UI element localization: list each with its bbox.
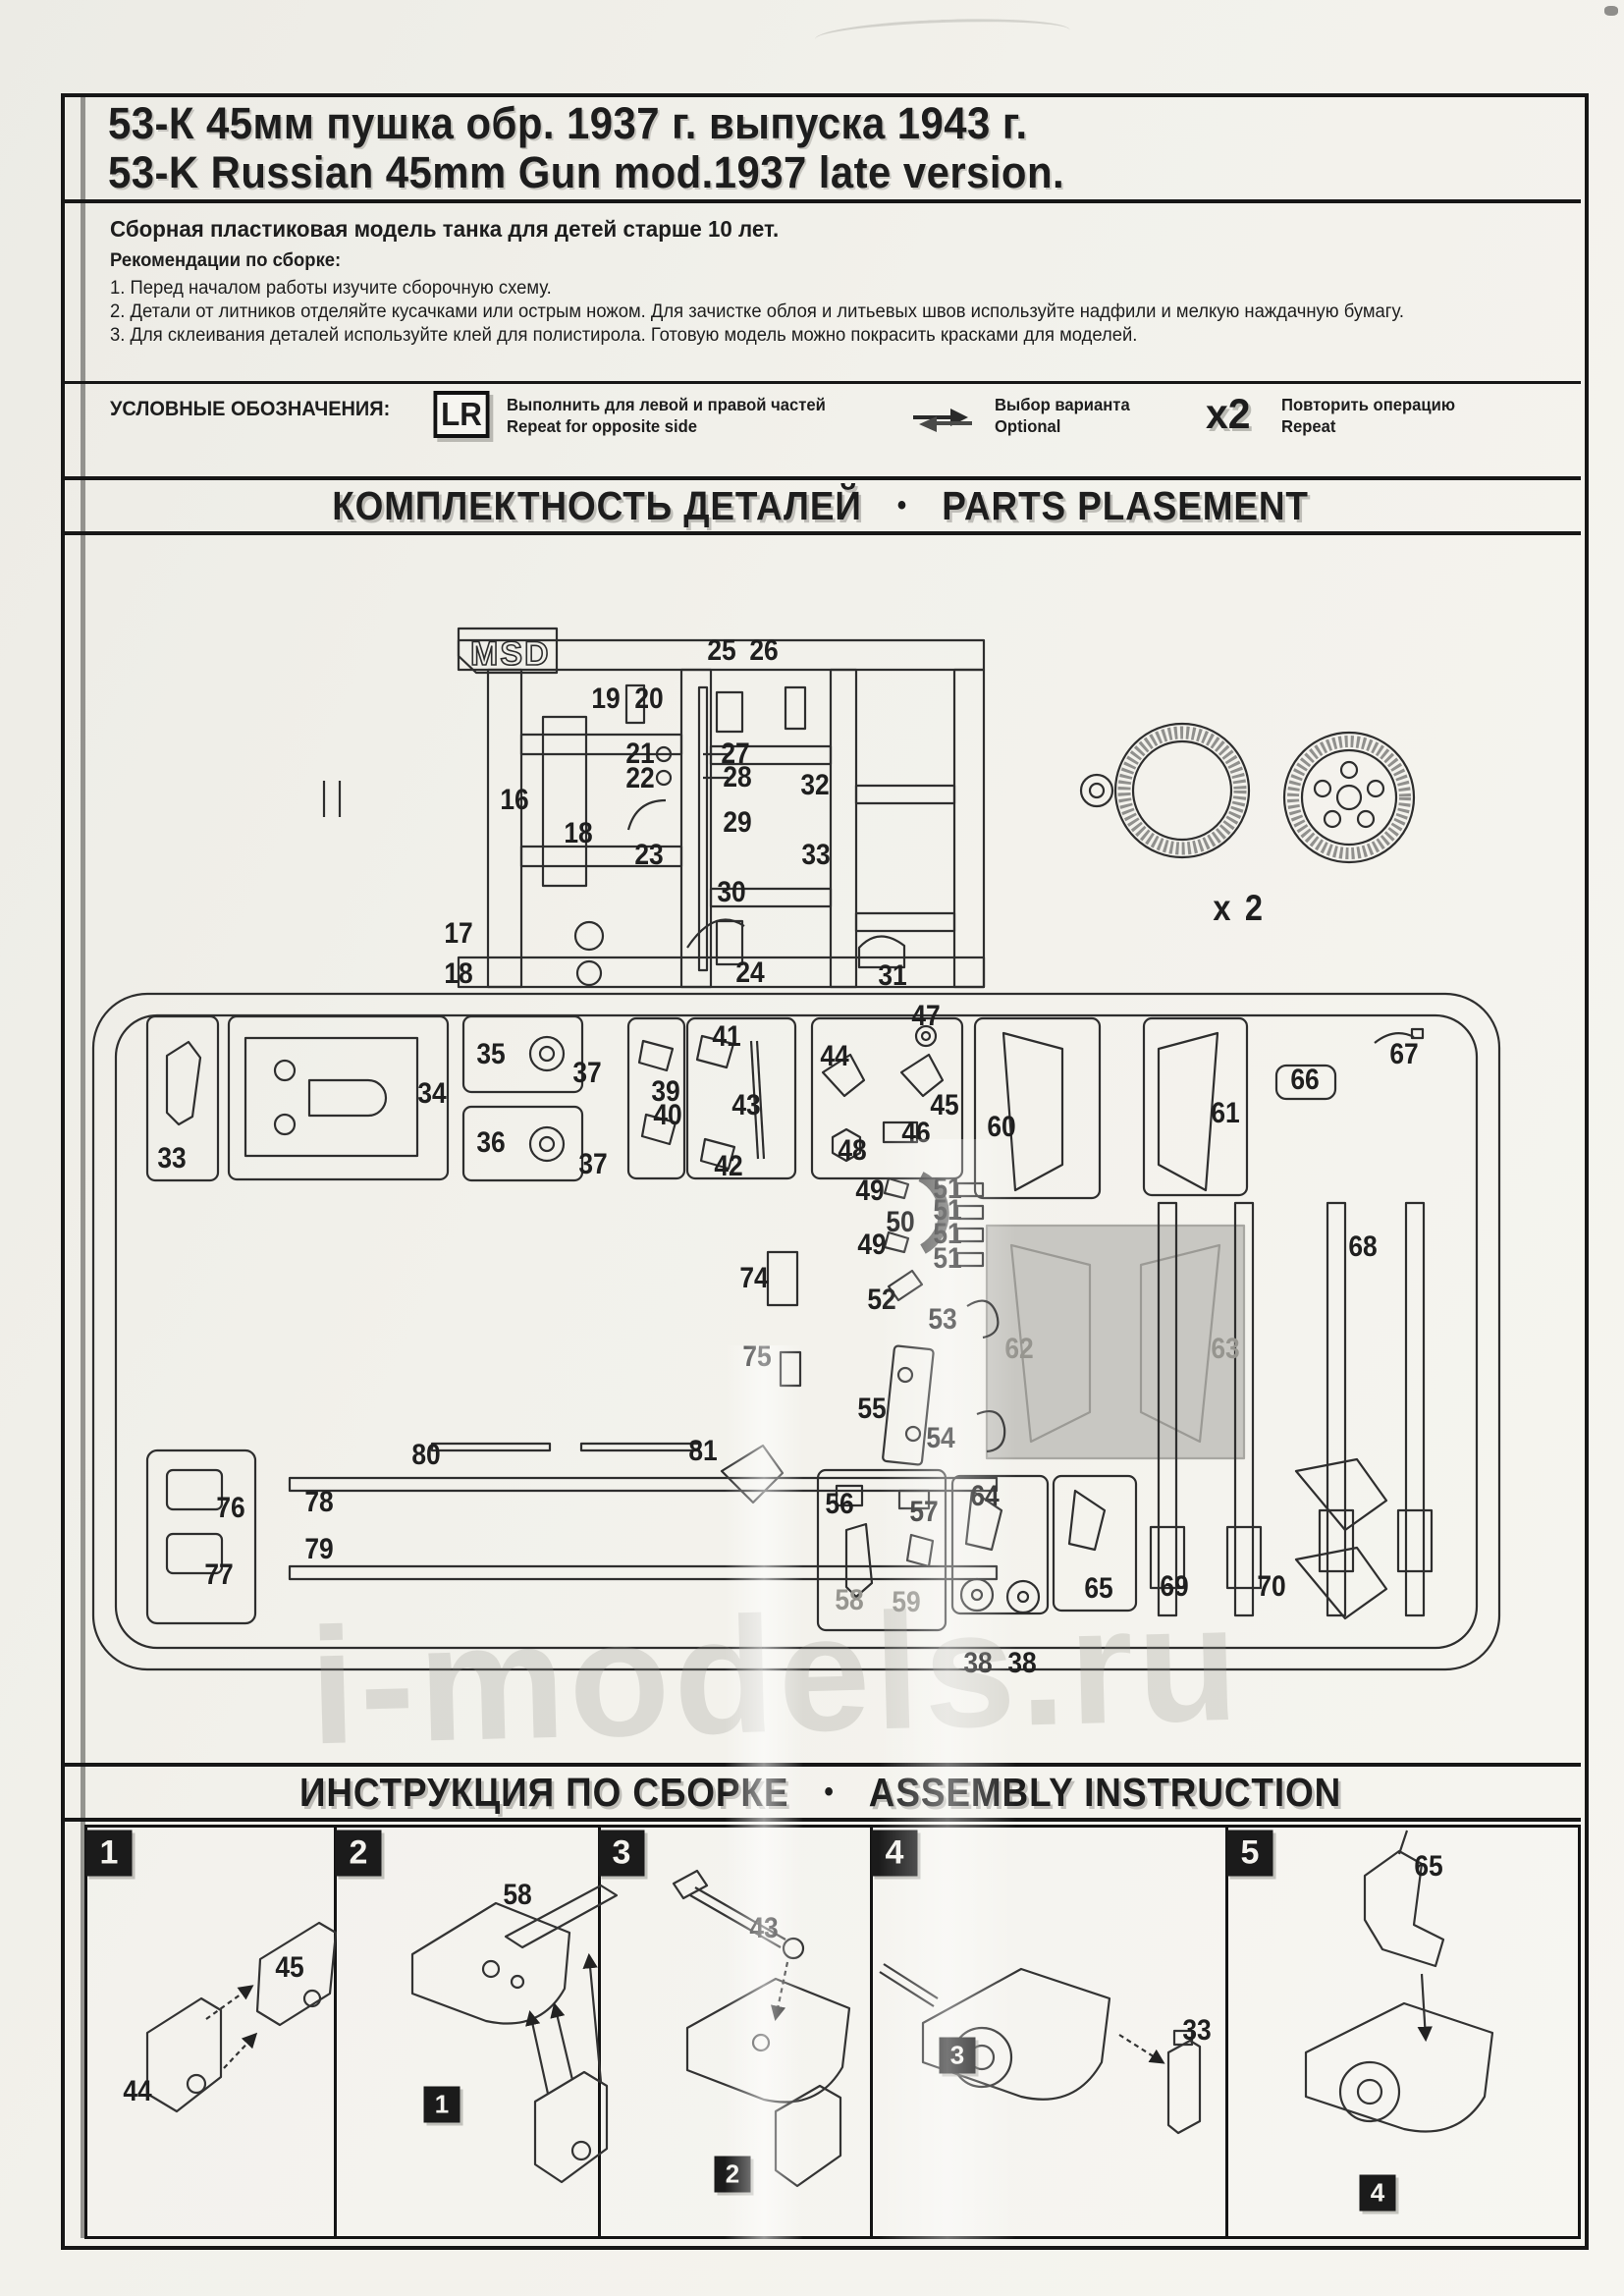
shop-watermark: i-models.ru [379,1517,1172,1832]
scan-artifact-curve [815,15,1071,54]
optional-text-en: Optional [995,415,1130,437]
recommendation-line: 1. Перед началом работы изучите сборочну… [110,277,1510,301]
title-box: 53-К 45мм пушка обр. 1937 г. выпуска 194… [61,93,1581,203]
lr-legend-text: Выполнить для левой и правой частей Repe… [507,394,826,437]
parts-header-ru: КОМПЛЕКТНОСТЬ ДЕТАЛЕЙ [333,483,863,529]
kit-title-english: 53-K Russian 45mm Gun mod.1937 late vers… [108,148,1478,197]
recommendation-line: 3. Для склеивания деталей используйте кл… [110,324,1510,348]
parts-header-en: PARTS PLASEMENT [943,483,1310,529]
scan-artifact-speck [1604,6,1618,16]
recommendation-line: 2. Детали от литников отделяйте кусачкам… [110,301,1510,324]
intro-heading: Сборная пластиковая модель танка для дет… [110,216,1510,243]
parts-section-header: КОМПЛЕКТНОСТЬ ДЕТАЛЕЙ • PARTS PLASEMENT [61,476,1581,535]
lr-text-ru: Выполнить для левой и правой частей [507,394,826,415]
instruction-sheet-page: 53-К 45мм пушка обр. 1937 г. выпуска 194… [0,0,1624,2296]
optional-text-ru: Выбор варианта [995,394,1130,415]
repeat-legend-text: Повторить операцию Repeat [1281,394,1455,437]
kit-title-russian: 53-К 45мм пушка обр. 1937 г. выпуска 194… [108,99,1478,148]
assembly-step-drawings [61,1825,1581,2241]
repeat-x2-symbol: x2 [1206,391,1250,439]
parts-header-separator-dot: • [897,489,906,522]
lr-text-en: Repeat for opposite side [507,415,826,437]
repeat-text-en: Repeat [1281,415,1455,437]
repeat-text-ru: Повторить операцию [1281,394,1455,415]
lr-symbol: LR [441,396,482,433]
left-right-icon: LR [434,391,490,438]
recommendations-list: 1. Перед началом работы изучите сборочну… [110,277,1510,348]
legend-divider-rule [61,381,1581,384]
sprue-brand-logo: MSD [470,635,551,673]
intro-block: Сборная пластиковая модель танка для дет… [110,216,1510,348]
optional-arrows-icon [911,405,974,434]
optional-legend-text: Выбор варианта Optional [995,394,1130,437]
recommendations-label: Рекомендации по сборке: [110,250,1510,272]
legend-label: УСЛОВНЫЕ ОБОЗНАЧЕНИЯ: [110,398,390,421]
